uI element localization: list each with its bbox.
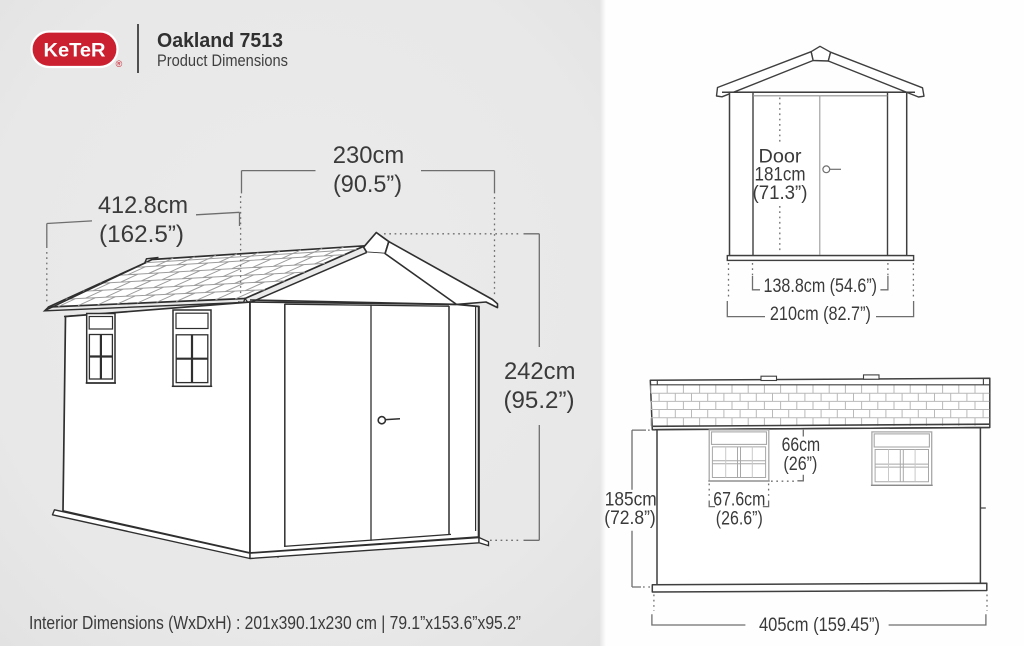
svg-text:Product Dimensions: Product Dimensions [157, 51, 288, 70]
svg-text:(90.5”): (90.5”) [333, 171, 402, 198]
svg-text:405cm (159.45”): 405cm (159.45”) [759, 614, 880, 636]
svg-text:242cm: 242cm [504, 358, 576, 385]
svg-text:(95.2”): (95.2”) [504, 387, 575, 414]
svg-text:(162.5”): (162.5”) [99, 221, 184, 248]
svg-text:412.8cm: 412.8cm [98, 192, 188, 219]
svg-text:®: ® [116, 59, 123, 69]
svg-text:(72.8”): (72.8”) [604, 507, 656, 529]
svg-text:(26.6”): (26.6”) [716, 508, 763, 530]
svg-text:138.8cm (54.6”): 138.8cm (54.6”) [764, 275, 878, 297]
svg-text:KeTeR: KeTeR [44, 41, 106, 62]
svg-text:Interior Dimensions (WxDxH) :: Interior Dimensions (WxDxH) : 201x390.1x… [29, 613, 521, 633]
svg-text:(71.3”): (71.3”) [753, 182, 808, 204]
svg-text:210cm (82.7”): 210cm (82.7”) [770, 303, 871, 325]
svg-text:(26”): (26”) [783, 453, 817, 475]
svg-text:Oakland 7513: Oakland 7513 [157, 29, 283, 52]
svg-text:230cm: 230cm [333, 142, 405, 169]
